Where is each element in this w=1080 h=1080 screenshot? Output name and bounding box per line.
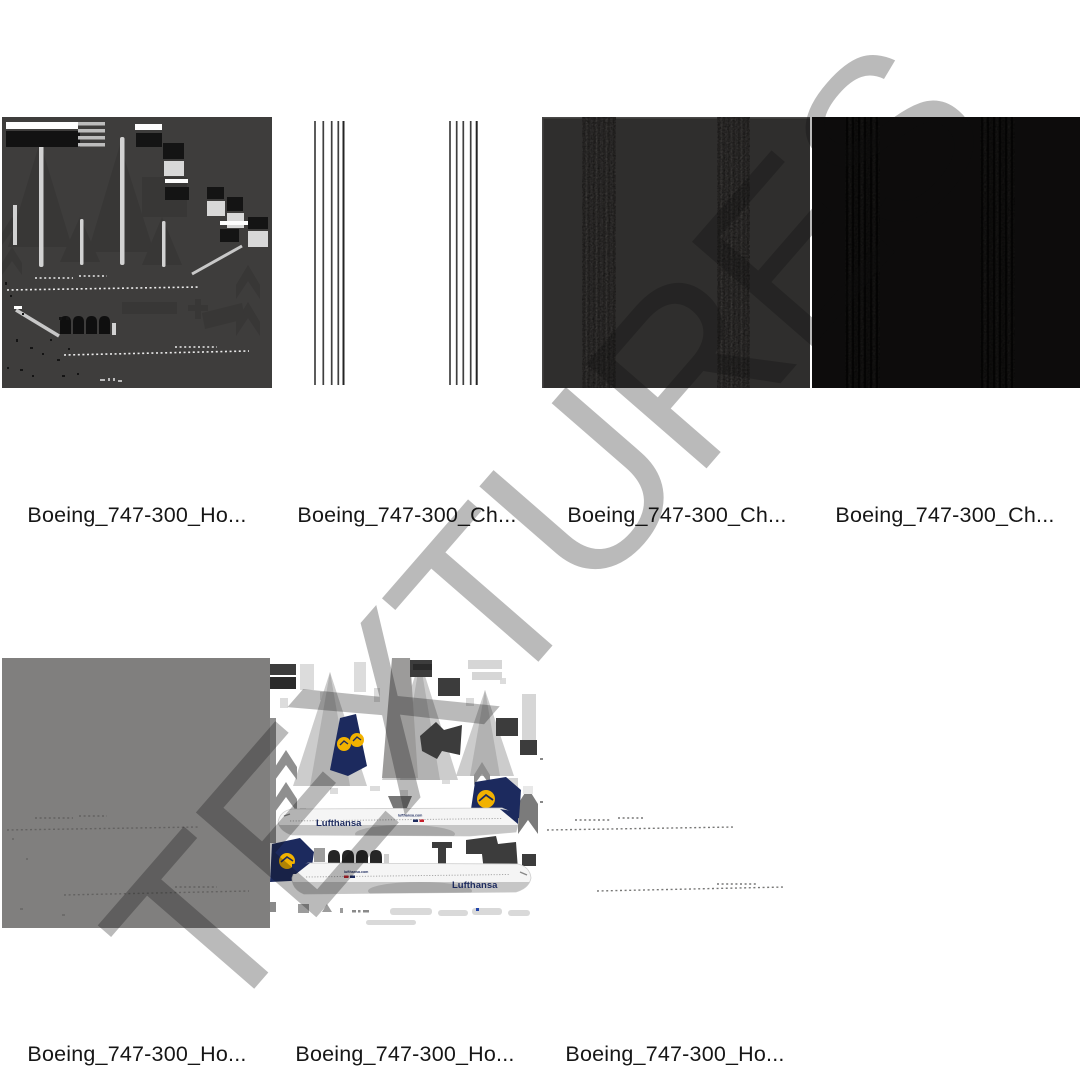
texture-thumbnail-5[interactable]	[2, 658, 272, 928]
white-window-map-graphic	[540, 658, 810, 928]
texture-thumbnail-1[interactable]	[2, 117, 272, 388]
texture-thumbnail-2[interactable]	[272, 117, 542, 388]
lufthansa-wordmark-1: Lufthansa	[316, 818, 362, 829]
texture-filename-5: Boeing_747-300_Ho...	[2, 1042, 272, 1067]
band-right	[717, 117, 750, 388]
charcoal-band-map-graphic	[542, 117, 810, 388]
line-group-map-graphic	[272, 117, 542, 388]
texture-filename-7: Boeing_747-300_Ho...	[540, 1042, 810, 1067]
lufthansa-wordmark-2: Lufthansa	[452, 880, 498, 891]
texture-thumbnail-3[interactable]	[542, 117, 810, 388]
band-left	[845, 117, 880, 388]
texture-filename-6: Boeing_747-300_Ho...	[270, 1042, 540, 1067]
texture-filename-4: Boeing_747-300_Ch...	[810, 503, 1080, 528]
texture-thumbnail-4[interactable]	[812, 117, 1080, 388]
lufthansa-url-2: lufthansa.com	[344, 870, 368, 874]
texture-filename-2: Boeing_747-300_Ch...	[272, 503, 542, 528]
band-right	[980, 117, 1015, 388]
lufthansa-diffuse-map-graphic: Lufthansa lufthansa.com	[270, 658, 540, 928]
texture-thumbnail-6[interactable]: Lufthansa lufthansa.com	[270, 658, 540, 928]
lufthansa-url-1: lufthansa.com	[398, 814, 422, 818]
dark-uv-map-graphic	[2, 117, 272, 388]
texture-thumbnail-7[interactable]	[540, 658, 810, 928]
texture-filename-3: Boeing_747-300_Ch...	[542, 503, 812, 528]
band-left	[582, 117, 616, 388]
black-band-map-graphic	[812, 117, 1080, 388]
texture-preview-page: Boeing_747-300_Ho... Boeing_747-300_Ch..…	[0, 0, 1080, 1080]
gray-window-map-graphic	[2, 658, 272, 928]
texture-filename-1: Boeing_747-300_Ho...	[2, 503, 272, 528]
